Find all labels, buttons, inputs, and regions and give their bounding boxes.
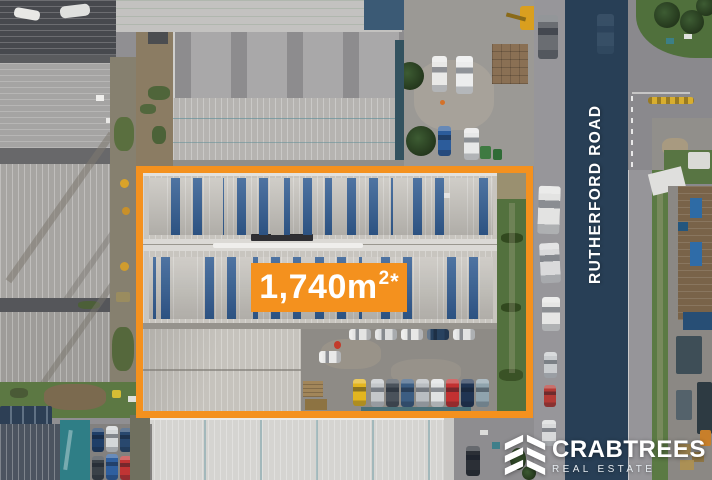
roof-line bbox=[173, 142, 402, 143]
property-yard bbox=[301, 329, 497, 411]
yellow-car bbox=[353, 379, 366, 406]
shed-roof bbox=[492, 44, 528, 84]
building-roof bbox=[0, 63, 118, 148]
traffic-cone bbox=[334, 341, 341, 349]
dark-car bbox=[92, 456, 104, 480]
dirt-path bbox=[657, 190, 663, 450]
skylight-bar bbox=[213, 243, 363, 248]
white-van bbox=[542, 297, 560, 331]
area-label: 1,740m 2 * bbox=[251, 263, 407, 312]
white-van bbox=[453, 329, 475, 340]
area-asterisk: * bbox=[390, 269, 399, 295]
dirt-patch bbox=[497, 173, 526, 199]
white-car bbox=[464, 128, 479, 160]
aerial-property-photo: RUTHERFORD ROAD bbox=[0, 0, 712, 480]
building-roof bbox=[173, 32, 404, 98]
roof-edge-strip bbox=[444, 418, 454, 480]
blue-car bbox=[438, 126, 451, 156]
brand-lockup: CRABTREES REAL ESTATE bbox=[552, 437, 706, 475]
grass-patch bbox=[152, 126, 166, 144]
building-roof bbox=[116, 0, 402, 32]
tan-building bbox=[678, 186, 712, 320]
navy-car bbox=[461, 379, 474, 407]
roof-line bbox=[173, 118, 402, 119]
container bbox=[697, 382, 712, 434]
roof-section bbox=[364, 0, 404, 30]
blue-tarp bbox=[690, 198, 702, 218]
silver-car bbox=[371, 379, 384, 407]
drum bbox=[122, 207, 130, 215]
ridge-line bbox=[143, 369, 301, 371]
excavator bbox=[520, 6, 534, 30]
building-roof-bottom bbox=[148, 418, 444, 480]
roof-corrugation bbox=[0, 164, 112, 298]
grass-patch bbox=[148, 86, 170, 100]
silver-car bbox=[544, 352, 557, 378]
grass-patch bbox=[114, 117, 134, 151]
container bbox=[676, 390, 692, 420]
roof-gutter bbox=[0, 55, 116, 63]
green-bin bbox=[493, 149, 502, 160]
roof-lines bbox=[116, 0, 402, 32]
white-van bbox=[401, 329, 423, 340]
silver-car bbox=[416, 379, 429, 407]
container bbox=[676, 336, 702, 374]
tree bbox=[654, 2, 680, 28]
bin-row bbox=[0, 406, 52, 426]
white-shed bbox=[688, 152, 710, 169]
courtyard bbox=[404, 0, 534, 166]
palm-tree bbox=[406, 126, 436, 156]
dirt-patch bbox=[44, 384, 106, 410]
roof-vent bbox=[96, 95, 104, 101]
drum bbox=[120, 262, 129, 271]
navy-car bbox=[92, 428, 104, 452]
white-object bbox=[480, 430, 488, 435]
teal-car bbox=[476, 379, 489, 407]
brand-name: CRABTREES bbox=[552, 437, 706, 462]
white-van bbox=[375, 329, 397, 340]
area-value: 1,740m bbox=[259, 268, 377, 307]
lower-roof bbox=[143, 329, 301, 411]
building-roof bbox=[0, 312, 112, 390]
roof-corrugation bbox=[0, 63, 118, 148]
pallet-stack bbox=[303, 381, 323, 397]
white-truck bbox=[537, 186, 561, 235]
teal-object bbox=[666, 38, 674, 44]
dirt-patch bbox=[130, 415, 150, 480]
dark-truck bbox=[538, 15, 558, 59]
solar-panel-array-top bbox=[149, 178, 493, 235]
speed-hump bbox=[648, 97, 694, 104]
gray-car bbox=[386, 379, 399, 407]
teal-building bbox=[60, 420, 90, 480]
white-car bbox=[431, 379, 444, 407]
white-ute bbox=[456, 56, 473, 94]
pallet-stack bbox=[305, 399, 327, 410]
blue-tarp bbox=[678, 222, 688, 231]
drum bbox=[120, 179, 129, 188]
dark-car bbox=[466, 446, 480, 476]
grass-patch bbox=[140, 104, 156, 114]
red-car bbox=[446, 379, 459, 407]
building-roof bbox=[0, 164, 112, 298]
red-car bbox=[544, 385, 556, 407]
blue-car bbox=[106, 454, 118, 480]
grass-patch bbox=[112, 327, 134, 371]
dirt-path bbox=[509, 203, 515, 373]
sidewalk-east bbox=[628, 170, 653, 480]
building-roof bbox=[173, 98, 402, 162]
white-truck bbox=[539, 243, 561, 284]
yellow-object bbox=[112, 390, 121, 398]
clutter bbox=[116, 292, 130, 302]
roof-edge-strip bbox=[395, 40, 404, 162]
white-ute bbox=[319, 351, 341, 363]
building-roof bbox=[0, 424, 62, 480]
roof-corrugation bbox=[0, 312, 112, 390]
grass-strip bbox=[497, 173, 526, 411]
dark-roof-unit bbox=[251, 234, 313, 241]
dark-patch bbox=[10, 388, 28, 398]
excavator-arm bbox=[506, 12, 526, 21]
parking-lane-west bbox=[534, 0, 566, 480]
shed bbox=[148, 32, 168, 44]
roof-lines bbox=[148, 420, 444, 480]
grass-verge bbox=[652, 170, 668, 480]
blue-tarp bbox=[690, 242, 702, 266]
roof-eave-line bbox=[143, 173, 497, 176]
traffic-cone bbox=[440, 100, 445, 105]
blue-car bbox=[401, 379, 414, 407]
crabtrees-logo-mark-icon bbox=[501, 429, 549, 479]
teal-awning bbox=[361, 407, 471, 412]
green-bin bbox=[480, 146, 491, 159]
white-car bbox=[106, 426, 118, 452]
blue-tarp bbox=[683, 312, 712, 330]
teal-object bbox=[492, 442, 500, 449]
roof-streak bbox=[63, 430, 73, 470]
dirt-patch bbox=[414, 60, 494, 130]
roof-stripes bbox=[175, 32, 404, 98]
side-yard bbox=[110, 57, 136, 390]
brand-tagline: REAL ESTATE bbox=[552, 464, 706, 475]
white-van bbox=[349, 329, 371, 340]
area-superscript: 2 bbox=[379, 268, 390, 290]
stop-line bbox=[632, 92, 690, 94]
building-roof bbox=[0, 0, 116, 57]
dashed-line bbox=[631, 96, 633, 180]
roof-corrugation bbox=[0, 424, 62, 480]
dark-van bbox=[427, 329, 449, 340]
roof-corrugation bbox=[173, 98, 402, 162]
white-ute bbox=[432, 56, 447, 92]
white-object bbox=[684, 34, 692, 39]
